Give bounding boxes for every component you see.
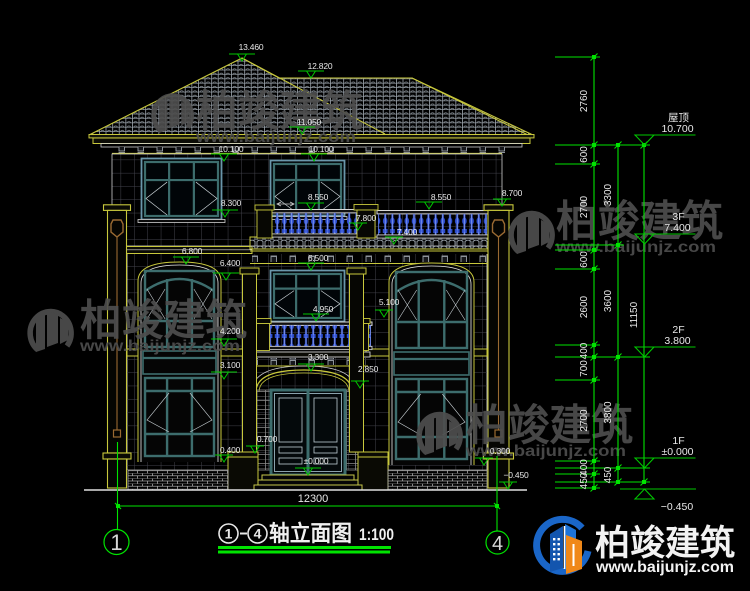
svg-text:6.800: 6.800 xyxy=(182,246,203,256)
svg-text:4: 4 xyxy=(492,533,503,555)
svg-text:12300: 12300 xyxy=(298,493,329,505)
svg-text:3800: 3800 xyxy=(603,401,614,424)
svg-text:11.050: 11.050 xyxy=(297,117,322,127)
svg-text:3300: 3300 xyxy=(603,183,614,206)
svg-text:3.100: 3.100 xyxy=(220,360,241,370)
svg-text:1: 1 xyxy=(110,530,122,555)
svg-text:2.850: 2.850 xyxy=(358,364,379,374)
svg-text:2600: 2600 xyxy=(579,295,590,318)
svg-text:700: 700 xyxy=(579,360,590,377)
svg-text:450: 450 xyxy=(579,472,590,489)
svg-text:2760: 2760 xyxy=(579,89,590,112)
svg-text:4: 4 xyxy=(254,526,262,542)
svg-text:10.100: 10.100 xyxy=(219,144,244,154)
svg-text:7.400: 7.400 xyxy=(664,222,690,234)
svg-text:10.700: 10.700 xyxy=(661,123,693,135)
svg-text:11150: 11150 xyxy=(629,301,640,328)
svg-text:5.100: 5.100 xyxy=(379,297,400,307)
svg-text:13.460: 13.460 xyxy=(239,42,264,52)
svg-text:柏竣建筑: 柏竣建筑 xyxy=(595,523,735,563)
svg-text:7.800: 7.800 xyxy=(356,213,377,223)
svg-text:1: 1 xyxy=(225,526,233,542)
svg-text:3.800: 3.800 xyxy=(664,335,690,347)
svg-text:7.400: 7.400 xyxy=(397,227,418,237)
svg-text:450: 450 xyxy=(603,466,614,483)
svg-text:8.300: 8.300 xyxy=(221,198,242,208)
svg-text:600: 600 xyxy=(579,251,590,268)
svg-text:0.300: 0.300 xyxy=(490,446,511,456)
svg-text:600: 600 xyxy=(579,146,590,163)
svg-text:400: 400 xyxy=(579,342,590,359)
svg-text:±0.000: ±0.000 xyxy=(304,456,329,466)
svg-text:0.700: 0.700 xyxy=(257,434,278,444)
svg-text:−0.450: −0.450 xyxy=(661,501,694,513)
svg-text:1:100: 1:100 xyxy=(359,526,394,544)
svg-text:6.400: 6.400 xyxy=(220,258,241,268)
svg-text:12.820: 12.820 xyxy=(308,61,333,71)
svg-text:轴立面图: 轴立面图 xyxy=(269,521,352,546)
svg-text:±0.000: ±0.000 xyxy=(661,446,693,458)
svg-text:0.400: 0.400 xyxy=(220,445,241,455)
svg-text:4.200: 4.200 xyxy=(220,326,241,336)
svg-text:−0.450: −0.450 xyxy=(503,470,529,480)
svg-text:6.500: 6.500 xyxy=(308,253,329,263)
svg-text:www.baijunjz.com: www.baijunjz.com xyxy=(595,559,734,576)
svg-text:2700: 2700 xyxy=(579,195,590,218)
svg-text:8.550: 8.550 xyxy=(308,192,329,202)
svg-text:4.950: 4.950 xyxy=(313,304,334,314)
svg-text:www.baijunjz.com: www.baijunjz.com xyxy=(79,338,240,355)
svg-text:3600: 3600 xyxy=(603,289,614,312)
svg-text:8.550: 8.550 xyxy=(431,192,452,202)
svg-text:10.100: 10.100 xyxy=(309,144,334,154)
svg-text:3.300: 3.300 xyxy=(308,352,329,362)
svg-text:8.700: 8.700 xyxy=(502,188,523,198)
svg-text:2700: 2700 xyxy=(579,409,590,432)
